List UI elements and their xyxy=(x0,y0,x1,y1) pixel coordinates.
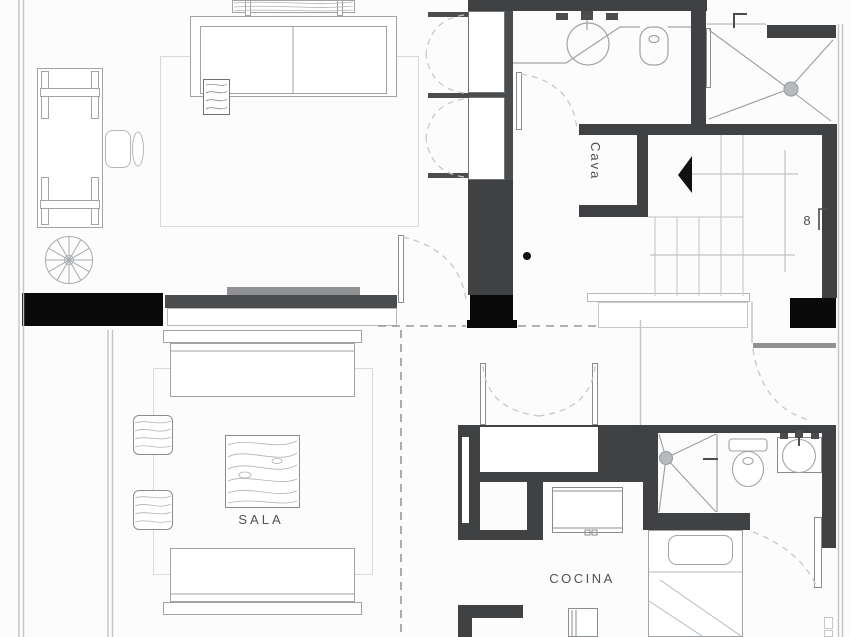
window-sill-2 xyxy=(824,630,833,637)
wall-pantry-right xyxy=(527,482,543,535)
tv-cabinet xyxy=(167,308,397,326)
sala-sofa-top-body xyxy=(170,343,355,397)
label-cava: Cava xyxy=(588,142,603,202)
coffee-table xyxy=(225,435,300,508)
stair-lower-landing xyxy=(598,302,748,328)
sink1-faucet xyxy=(556,11,618,20)
wall-kitchen-stub xyxy=(458,530,543,540)
wall-stub-1 xyxy=(428,12,468,17)
wall-stairs-black xyxy=(790,298,836,328)
sala-sofa-top-back xyxy=(163,330,362,343)
wall-bath2-bottom xyxy=(643,513,750,530)
wall-stub-3 xyxy=(428,173,468,178)
label-stair-number: 8 xyxy=(799,213,815,228)
column-dot xyxy=(523,252,531,260)
console-leg-right xyxy=(337,0,343,16)
desk-chair-back xyxy=(133,132,144,166)
spiral-stair xyxy=(46,237,93,284)
wall-top-right-bar xyxy=(767,25,836,38)
toilet-tank xyxy=(729,439,767,451)
wall-center-column xyxy=(468,180,513,295)
wall-top-bath xyxy=(468,0,707,11)
closet-upper-2 xyxy=(468,97,505,180)
wall-closet-strip xyxy=(505,11,513,180)
wall-bottom-left-v xyxy=(458,605,472,637)
wall-kitchen-under xyxy=(480,472,647,482)
desk-bar-top xyxy=(40,88,100,97)
console-leg-left xyxy=(245,0,251,16)
stair-direction-arrow xyxy=(678,156,692,193)
shower1 xyxy=(709,30,833,121)
step-mark-top xyxy=(734,14,747,28)
bidet xyxy=(640,27,668,65)
tv xyxy=(227,287,360,295)
door-panel-hall xyxy=(398,235,404,303)
door-panel-bedroom xyxy=(814,517,822,588)
door-panel-kitchen-left xyxy=(480,363,486,425)
bedroom-closet-bar xyxy=(753,343,836,348)
wall-stairs-right xyxy=(822,135,837,298)
side-table-wood xyxy=(203,79,230,115)
wall-tv-bar xyxy=(165,295,397,308)
stool-2 xyxy=(133,490,173,530)
window-sill-1 xyxy=(824,617,833,629)
closet-upper-1 xyxy=(468,11,505,93)
wall-cava-bottom xyxy=(579,205,648,217)
door-panel-kitchen-right xyxy=(592,363,598,425)
wall-cava-top xyxy=(579,124,837,135)
door-panel-bath1 xyxy=(516,72,522,130)
bed-pillow xyxy=(668,535,733,565)
label-cocina: COCINA xyxy=(538,571,626,586)
sala-sofa-bottom-back xyxy=(163,602,362,615)
wall-bedroom-right xyxy=(822,433,836,548)
stool-1 xyxy=(133,415,173,455)
bath2-sink-counter xyxy=(777,437,822,473)
bathroom1-fixtures xyxy=(513,20,691,65)
kitchen-doorway xyxy=(480,427,598,472)
sink1-basin xyxy=(567,23,609,65)
sala-sofa-bottom-body xyxy=(170,548,355,602)
floor-plan: Cava 8 SALA COCINA xyxy=(0,0,850,637)
toilet-bowl xyxy=(733,452,764,487)
wall-black-lower-left xyxy=(467,320,517,328)
label-sala: SALA xyxy=(222,512,300,527)
dishwasher xyxy=(568,608,598,637)
door-panel-shower1 xyxy=(706,28,711,88)
kitchen-counter xyxy=(552,487,623,533)
wall-tv-black xyxy=(22,293,163,326)
stair-landing-bar xyxy=(587,293,750,302)
staircase xyxy=(648,135,798,296)
kitchen-window-slot xyxy=(462,437,469,523)
wall-stub-2 xyxy=(428,93,468,98)
desk-bar-bottom xyxy=(40,200,100,209)
desk-chair-seat xyxy=(105,130,131,168)
wall-shower-left xyxy=(691,11,706,124)
